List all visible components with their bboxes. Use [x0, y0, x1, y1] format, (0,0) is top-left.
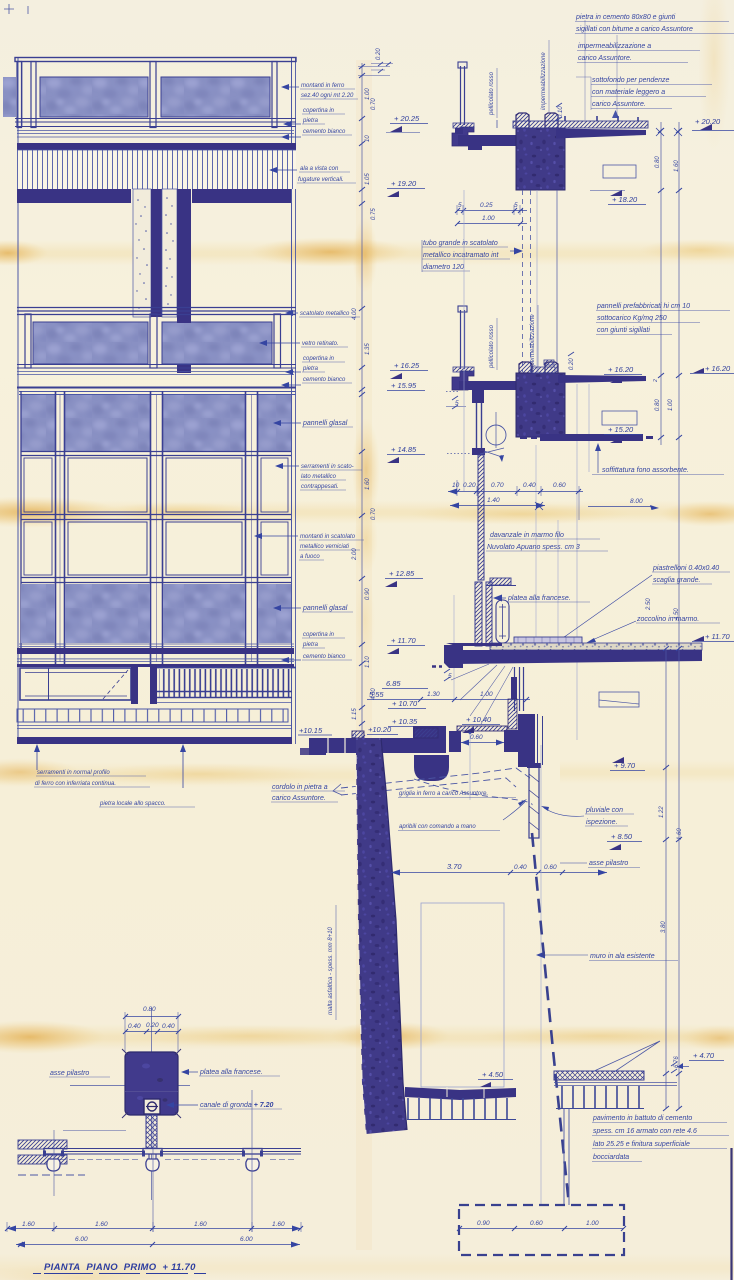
svg-text:contrappesati.: contrappesati.	[301, 484, 339, 490]
svg-text:6.85: 6.85	[386, 679, 401, 688]
svg-text:pellicolato rosso: pellicolato rosso	[489, 324, 495, 369]
svg-text:Nuvolato Apuano spess. cm 3: Nuvolato Apuano spess. cm 3	[487, 544, 580, 551]
svg-text:impermeabilizzazione: impermeabilizzazione	[541, 52, 547, 110]
svg-text:+10.20: +10.20	[368, 725, 392, 734]
svg-text:0.75: 0.75	[371, 208, 377, 220]
svg-text:soffittatura fono assorbente.: soffittatura fono assorbente.	[602, 467, 689, 474]
svg-text:1.60: 1.60	[677, 828, 683, 840]
svg-text:0.60: 0.60	[530, 1220, 543, 1227]
svg-text:2: 2	[653, 379, 659, 383]
svg-text:+ 18.20: + 18.20	[612, 195, 638, 204]
svg-text:0.80: 0.80	[143, 1006, 156, 1013]
svg-text:+ 16.20: + 16.20	[608, 365, 634, 374]
svg-text:0.80: 0.80	[655, 156, 661, 168]
svg-text:pietra locale allo spacco.: pietra locale allo spacco.	[99, 801, 166, 807]
svg-text:platea alla francese.: platea alla francese.	[507, 595, 571, 602]
svg-text:0.70: 0.70	[491, 482, 504, 489]
svg-text:piastrelloni 0.40x0.40: piastrelloni 0.40x0.40	[652, 565, 719, 572]
svg-text:1.30: 1.30	[427, 691, 440, 698]
svg-text:pietra: pietra	[302, 642, 319, 648]
svg-text:scatolato metallico: scatolato metallico	[300, 311, 350, 317]
svg-text:copertina in: copertina in	[303, 356, 335, 362]
svg-text:cemento bianco: cemento bianco	[303, 377, 346, 383]
svg-text:0.60: 0.60	[470, 734, 483, 741]
svg-text:+ 10.40: + 10.40	[466, 715, 492, 724]
svg-text:1.60: 1.60	[22, 1221, 35, 1228]
svg-text:0.90: 0.90	[365, 588, 371, 600]
svg-text:impermeabilizzazione a: impermeabilizzazione a	[578, 43, 651, 50]
svg-text:1.60: 1.60	[95, 1221, 108, 1228]
svg-text:6.00: 6.00	[240, 1236, 253, 1243]
svg-text:pietra in cemento 80x80 e giun: pietra in cemento 80x80 e giunti	[575, 14, 676, 21]
svg-text:+ 4.70: + 4.70	[693, 1051, 715, 1060]
svg-text:pluviale con: pluviale con	[585, 807, 623, 814]
svg-text:+ 12.85: + 12.85	[389, 569, 415, 578]
svg-text:PIANTA PIANO PRIMO + 11.70: PIANTA PIANO PRIMO + 11.70	[44, 1262, 196, 1273]
svg-text:1.00: 1.00	[482, 215, 495, 222]
svg-text:8.00: 8.00	[630, 498, 643, 505]
svg-text:1.40: 1.40	[487, 497, 500, 504]
svg-text:+ 11.70: + 11.70	[705, 632, 731, 641]
svg-text:muro in ala esistente: muro in ala esistente	[590, 953, 655, 960]
svg-text:+ 16.25: + 16.25	[394, 361, 420, 370]
svg-text:asse pilastro: asse pilastro	[50, 1070, 89, 1077]
svg-text:+ 11.70: + 11.70	[391, 636, 417, 645]
svg-text:apribili con comando a mano: apribili con comando a mano	[399, 824, 476, 830]
svg-text:serramenti in normal profilo: serramenti in normal profilo	[37, 770, 110, 776]
svg-text:1.60: 1.60	[674, 160, 680, 172]
svg-text:sigillati con bitume a carico: sigillati con bitume a carico Assuntore	[576, 26, 693, 33]
svg-text:2.00: 2.00	[352, 548, 358, 561]
svg-text:1.00: 1.00	[668, 399, 674, 411]
svg-text:0.80: 0.80	[655, 399, 661, 411]
svg-text:5.55: 5.55	[369, 690, 384, 699]
svg-text:con materiale leggero a: con materiale leggero a	[592, 89, 665, 96]
svg-text:6.00: 6.00	[75, 1236, 88, 1243]
svg-text:5: 5	[458, 202, 462, 209]
svg-text:+ 16.20: + 16.20	[705, 364, 731, 373]
svg-text:0.60: 0.60	[544, 864, 557, 871]
svg-text:+10.15: +10.15	[299, 726, 323, 735]
svg-text:0.90: 0.90	[477, 1220, 490, 1227]
svg-text:ispezione.: ispezione.	[586, 819, 618, 826]
svg-text:scaglia grande.: scaglia grande.	[653, 577, 701, 584]
svg-text:davanzale in marmo filo: davanzale in marmo filo	[490, 532, 564, 539]
svg-text:+ 10.35: + 10.35	[392, 717, 418, 726]
svg-text:cemento bianco: cemento bianco	[303, 654, 346, 660]
svg-text:a fuoco: a fuoco	[300, 554, 320, 560]
svg-text:1.22: 1.22	[659, 806, 665, 818]
svg-text:0.20: 0.20	[463, 482, 476, 489]
svg-text:0.40: 0.40	[162, 1023, 175, 1030]
svg-text:+ 10.70: + 10.70	[392, 699, 418, 708]
svg-text:fugature verticali.: fugature verticali.	[298, 177, 344, 183]
svg-text:diametro 120: diametro 120	[423, 264, 464, 271]
svg-text:5: 5	[448, 673, 452, 680]
svg-text:0.40: 0.40	[128, 1023, 141, 1030]
svg-text:+ 4.50: + 4.50	[482, 1070, 504, 1079]
svg-text:+ 8.50: + 8.50	[611, 832, 633, 841]
svg-text:lato metallico: lato metallico	[301, 474, 337, 480]
svg-text:tubo grande in scatolato: tubo grande in scatolato	[423, 240, 498, 247]
svg-text:sottocarico Kg/mq 250: sottocarico Kg/mq 250	[597, 315, 667, 322]
svg-text:+ 14.85: + 14.85	[391, 445, 417, 454]
svg-text:3.80: 3.80	[661, 921, 667, 933]
svg-text:+ 15.20: + 15.20	[608, 425, 634, 434]
svg-text:carico Assuntore.: carico Assuntore.	[592, 101, 646, 108]
svg-text:1.15: 1.15	[352, 708, 358, 720]
svg-text:1.10: 1.10	[365, 656, 371, 668]
svg-text:asse pilastro: asse pilastro	[589, 860, 628, 867]
svg-text:pannelli prefabbricati hi cm: pannelli prefabbricati hi cm 10	[596, 303, 690, 310]
svg-text:4.50: 4.50	[674, 608, 680, 620]
svg-text:0.25: 0.25	[480, 202, 493, 209]
svg-text:spess. cm 16 armato con rete 4: spess. cm 16 armato con rete 4.6	[593, 1128, 697, 1135]
svg-text:griglia in ferro a carico Assu: griglia in ferro a carico Assuntore.	[399, 791, 488, 797]
svg-text:+ 20.20: + 20.20	[695, 117, 721, 126]
svg-text:1.00: 1.00	[365, 88, 371, 100]
svg-text:lato 25.25 e finitura superfic: lato 25.25 e finitura superficiale	[593, 1141, 690, 1148]
svg-text:0.20: 0.20	[569, 358, 575, 370]
svg-text:pietra: pietra	[302, 118, 319, 124]
svg-text:1.05: 1.05	[365, 173, 371, 185]
svg-text:bocciardata: bocciardata	[593, 1154, 629, 1161]
svg-text:montanti in scatolato: montanti in scatolato	[300, 534, 356, 540]
svg-text:copertina in: copertina in	[303, 632, 335, 638]
svg-text:con giunti sigillati: con giunti sigillati	[597, 327, 650, 334]
svg-text:pannelli glasal: pannelli glasal	[302, 605, 348, 612]
svg-text:metallico incatramato int: metallico incatramato int	[423, 252, 500, 259]
svg-text:+ 19.20: + 19.20	[391, 179, 417, 188]
svg-text:ala a vista con: ala a vista con	[300, 166, 339, 172]
svg-text:2.50: 2.50	[646, 598, 652, 611]
svg-text:+ 20.25: + 20.25	[394, 114, 420, 123]
svg-text:1.60: 1.60	[365, 478, 371, 490]
svg-text:carico Assuntore.: carico Assuntore.	[578, 55, 632, 62]
svg-text:1.00: 1.00	[480, 691, 493, 698]
svg-text:pellicolato rosso: pellicolato rosso	[489, 71, 495, 116]
svg-text:10: 10	[452, 482, 460, 489]
svg-text:metallico verniciati: metallico verniciati	[300, 544, 350, 550]
svg-text:1.60: 1.60	[194, 1221, 207, 1228]
svg-text:zoccolino in marmo.: zoccolino in marmo.	[636, 616, 699, 623]
svg-text:0.40: 0.40	[514, 864, 527, 871]
svg-text:cordolo in pietra a: cordolo in pietra a	[272, 784, 328, 791]
svg-text:malta asfaltica - spess. mm 8+: malta asfaltica - spess. mm 8+10	[328, 926, 334, 1015]
svg-text:0.70: 0.70	[371, 98, 377, 110]
svg-text:vetro retinato.: vetro retinato.	[302, 341, 339, 347]
svg-text:+ 15.95: + 15.95	[391, 381, 417, 390]
svg-text:platea alla francese.: platea alla francese.	[199, 1069, 263, 1076]
svg-text:0.40: 0.40	[523, 482, 536, 489]
svg-text:sottofondo per pendenze: sottofondo per pendenze	[592, 77, 670, 84]
svg-text:0.10: 0.10	[558, 106, 564, 118]
svg-text:5: 5	[514, 202, 518, 209]
svg-text:pannelli glasal: pannelli glasal	[302, 420, 348, 427]
svg-text:cemento bianco: cemento bianco	[303, 129, 346, 135]
svg-text:1.35: 1.35	[365, 343, 371, 355]
svg-text:0.70: 0.70	[371, 508, 377, 520]
svg-text:di ferro con inferriata contin: di ferro con inferriata continua.	[35, 781, 116, 787]
svg-text:1.00: 1.00	[586, 1220, 599, 1227]
svg-text:pavimento in battuto di cement: pavimento in battuto di cemento	[592, 1115, 692, 1122]
svg-text:1.60: 1.60	[272, 1221, 285, 1228]
svg-text:10: 10	[365, 135, 371, 142]
svg-text:sez.40 ogni mt 2.20: sez.40 ogni mt 2.20	[301, 93, 354, 99]
svg-text:pietra: pietra	[302, 366, 319, 372]
svg-text:0.60: 0.60	[553, 482, 566, 489]
svg-text:carico Assuntore.: carico Assuntore.	[272, 795, 326, 802]
svg-text:canale di gronda + 7.20: canale di gronda + 7.20	[200, 1102, 273, 1109]
svg-text:serramenti in scato-: serramenti in scato-	[301, 464, 354, 470]
svg-text:3.70: 3.70	[447, 862, 462, 871]
svg-text:0.20: 0.20	[376, 48, 382, 60]
svg-text:4.00: 4.00	[352, 308, 358, 320]
svg-text:copertina in: copertina in	[303, 108, 335, 114]
svg-text:montanti in ferro: montanti in ferro	[301, 83, 345, 89]
svg-text:0.20: 0.20	[146, 1022, 159, 1029]
